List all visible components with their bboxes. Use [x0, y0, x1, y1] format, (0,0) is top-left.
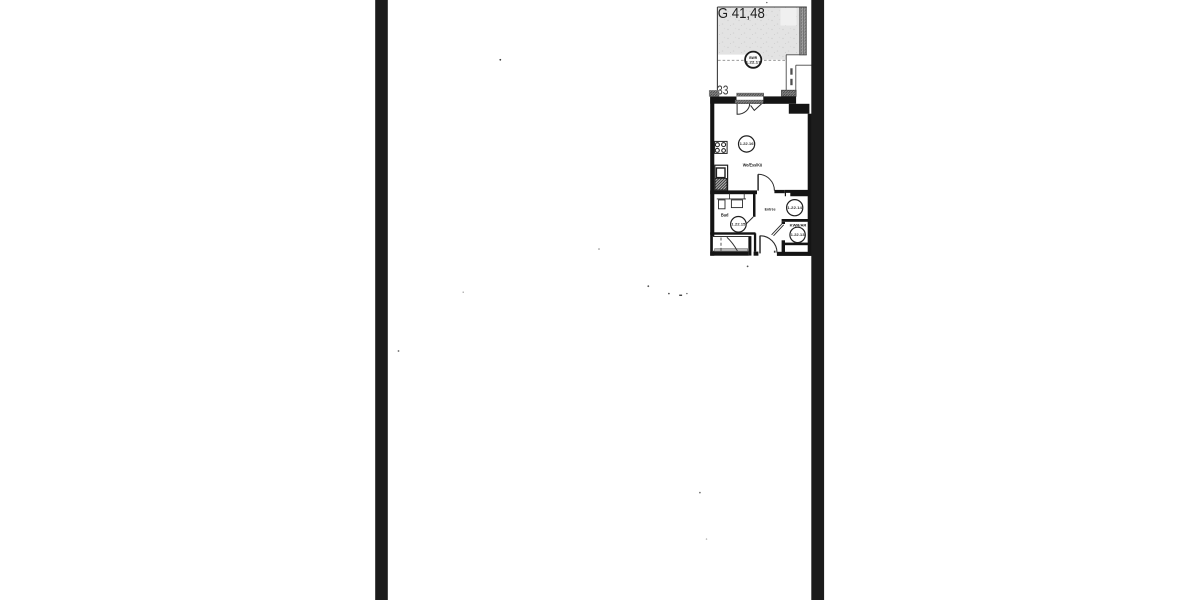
svg-text:Wo/Ess/Kü: Wo/Ess/Kü — [743, 163, 763, 168]
svg-text:1.22.13: 1.22.13 — [791, 233, 805, 237]
svg-text:1.22.16: 1.22.16 — [740, 142, 754, 146]
svg-text:1.22.14: 1.22.14 — [787, 206, 802, 210]
svg-text:1.22.17: 1.22.17 — [746, 61, 761, 65]
svg-text:Entrée: Entrée — [765, 207, 777, 212]
svg-text:BWR: BWR — [749, 56, 758, 60]
svg-text:G 41,48: G 41,48 — [718, 6, 765, 22]
svg-text:1.22.15: 1.22.15 — [731, 223, 745, 227]
svg-text:Bad: Bad — [721, 212, 729, 217]
